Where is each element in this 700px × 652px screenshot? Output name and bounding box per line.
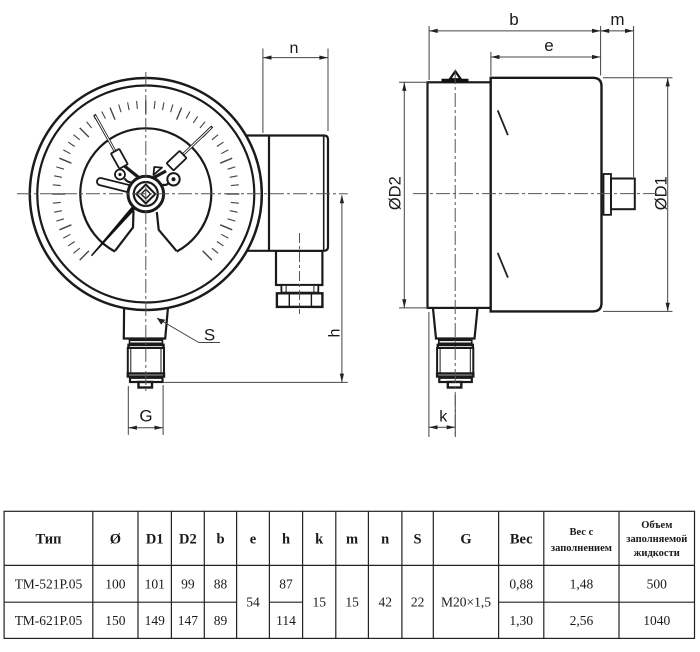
svg-text:k: k (315, 532, 324, 548)
svg-text:54: 54 (246, 595, 260, 610)
svg-text:Вес с: Вес с (570, 527, 594, 538)
svg-text:89: 89 (214, 613, 228, 628)
svg-text:e: e (250, 532, 257, 548)
svg-text:k: k (439, 409, 448, 426)
svg-text:Объем: Объем (641, 520, 672, 531)
svg-text:m: m (346, 532, 358, 548)
svg-text:88: 88 (214, 577, 228, 592)
svg-text:m: m (610, 10, 624, 29)
svg-text:42: 42 (378, 595, 392, 610)
svg-text:1,30: 1,30 (509, 613, 533, 628)
svg-text:Тип: Тип (35, 532, 61, 548)
svg-text:Вес: Вес (510, 532, 533, 548)
svg-text:15: 15 (312, 595, 326, 610)
svg-text:Ø: Ø (110, 532, 121, 548)
svg-text:S: S (414, 532, 422, 548)
svg-text:n: n (290, 40, 299, 57)
svg-text:жидкости: жидкости (634, 548, 680, 559)
svg-text:22: 22 (411, 595, 425, 610)
svg-text:1,48: 1,48 (570, 577, 594, 592)
svg-text:ТМ-621Р.05: ТМ-621Р.05 (15, 613, 83, 628)
svg-text:M20×1,5: M20×1,5 (441, 595, 491, 610)
svg-text:500: 500 (647, 577, 668, 592)
svg-text:n: n (381, 532, 389, 548)
svg-text:100: 100 (105, 577, 126, 592)
svg-text:S: S (204, 326, 215, 345)
svg-text:G: G (460, 532, 471, 548)
svg-text:87: 87 (279, 577, 293, 592)
svg-text:G: G (139, 407, 152, 426)
svg-text:заполняемой: заполняемой (626, 534, 687, 545)
svg-text:b: b (216, 532, 224, 548)
svg-text:2,56: 2,56 (570, 613, 594, 628)
svg-text:1040: 1040 (643, 613, 670, 628)
svg-text:149: 149 (145, 613, 166, 628)
svg-text:h: h (282, 532, 290, 548)
svg-text:заполнением: заполнением (551, 543, 612, 554)
svg-text:150: 150 (105, 613, 126, 628)
svg-text:99: 99 (181, 577, 195, 592)
svg-text:h: h (327, 329, 344, 338)
svg-text:101: 101 (145, 577, 165, 592)
svg-text:114: 114 (276, 613, 296, 628)
svg-text:D1: D1 (146, 532, 164, 548)
svg-text:0,88: 0,88 (509, 577, 533, 592)
svg-text:15: 15 (345, 595, 359, 610)
svg-text:ØD2: ØD2 (387, 176, 405, 210)
svg-text:D2: D2 (179, 532, 197, 548)
svg-text:e: e (544, 36, 553, 55)
svg-text:b: b (509, 10, 518, 29)
svg-text:ТМ-521Р.05: ТМ-521Р.05 (15, 577, 83, 592)
svg-text:147: 147 (178, 613, 199, 628)
